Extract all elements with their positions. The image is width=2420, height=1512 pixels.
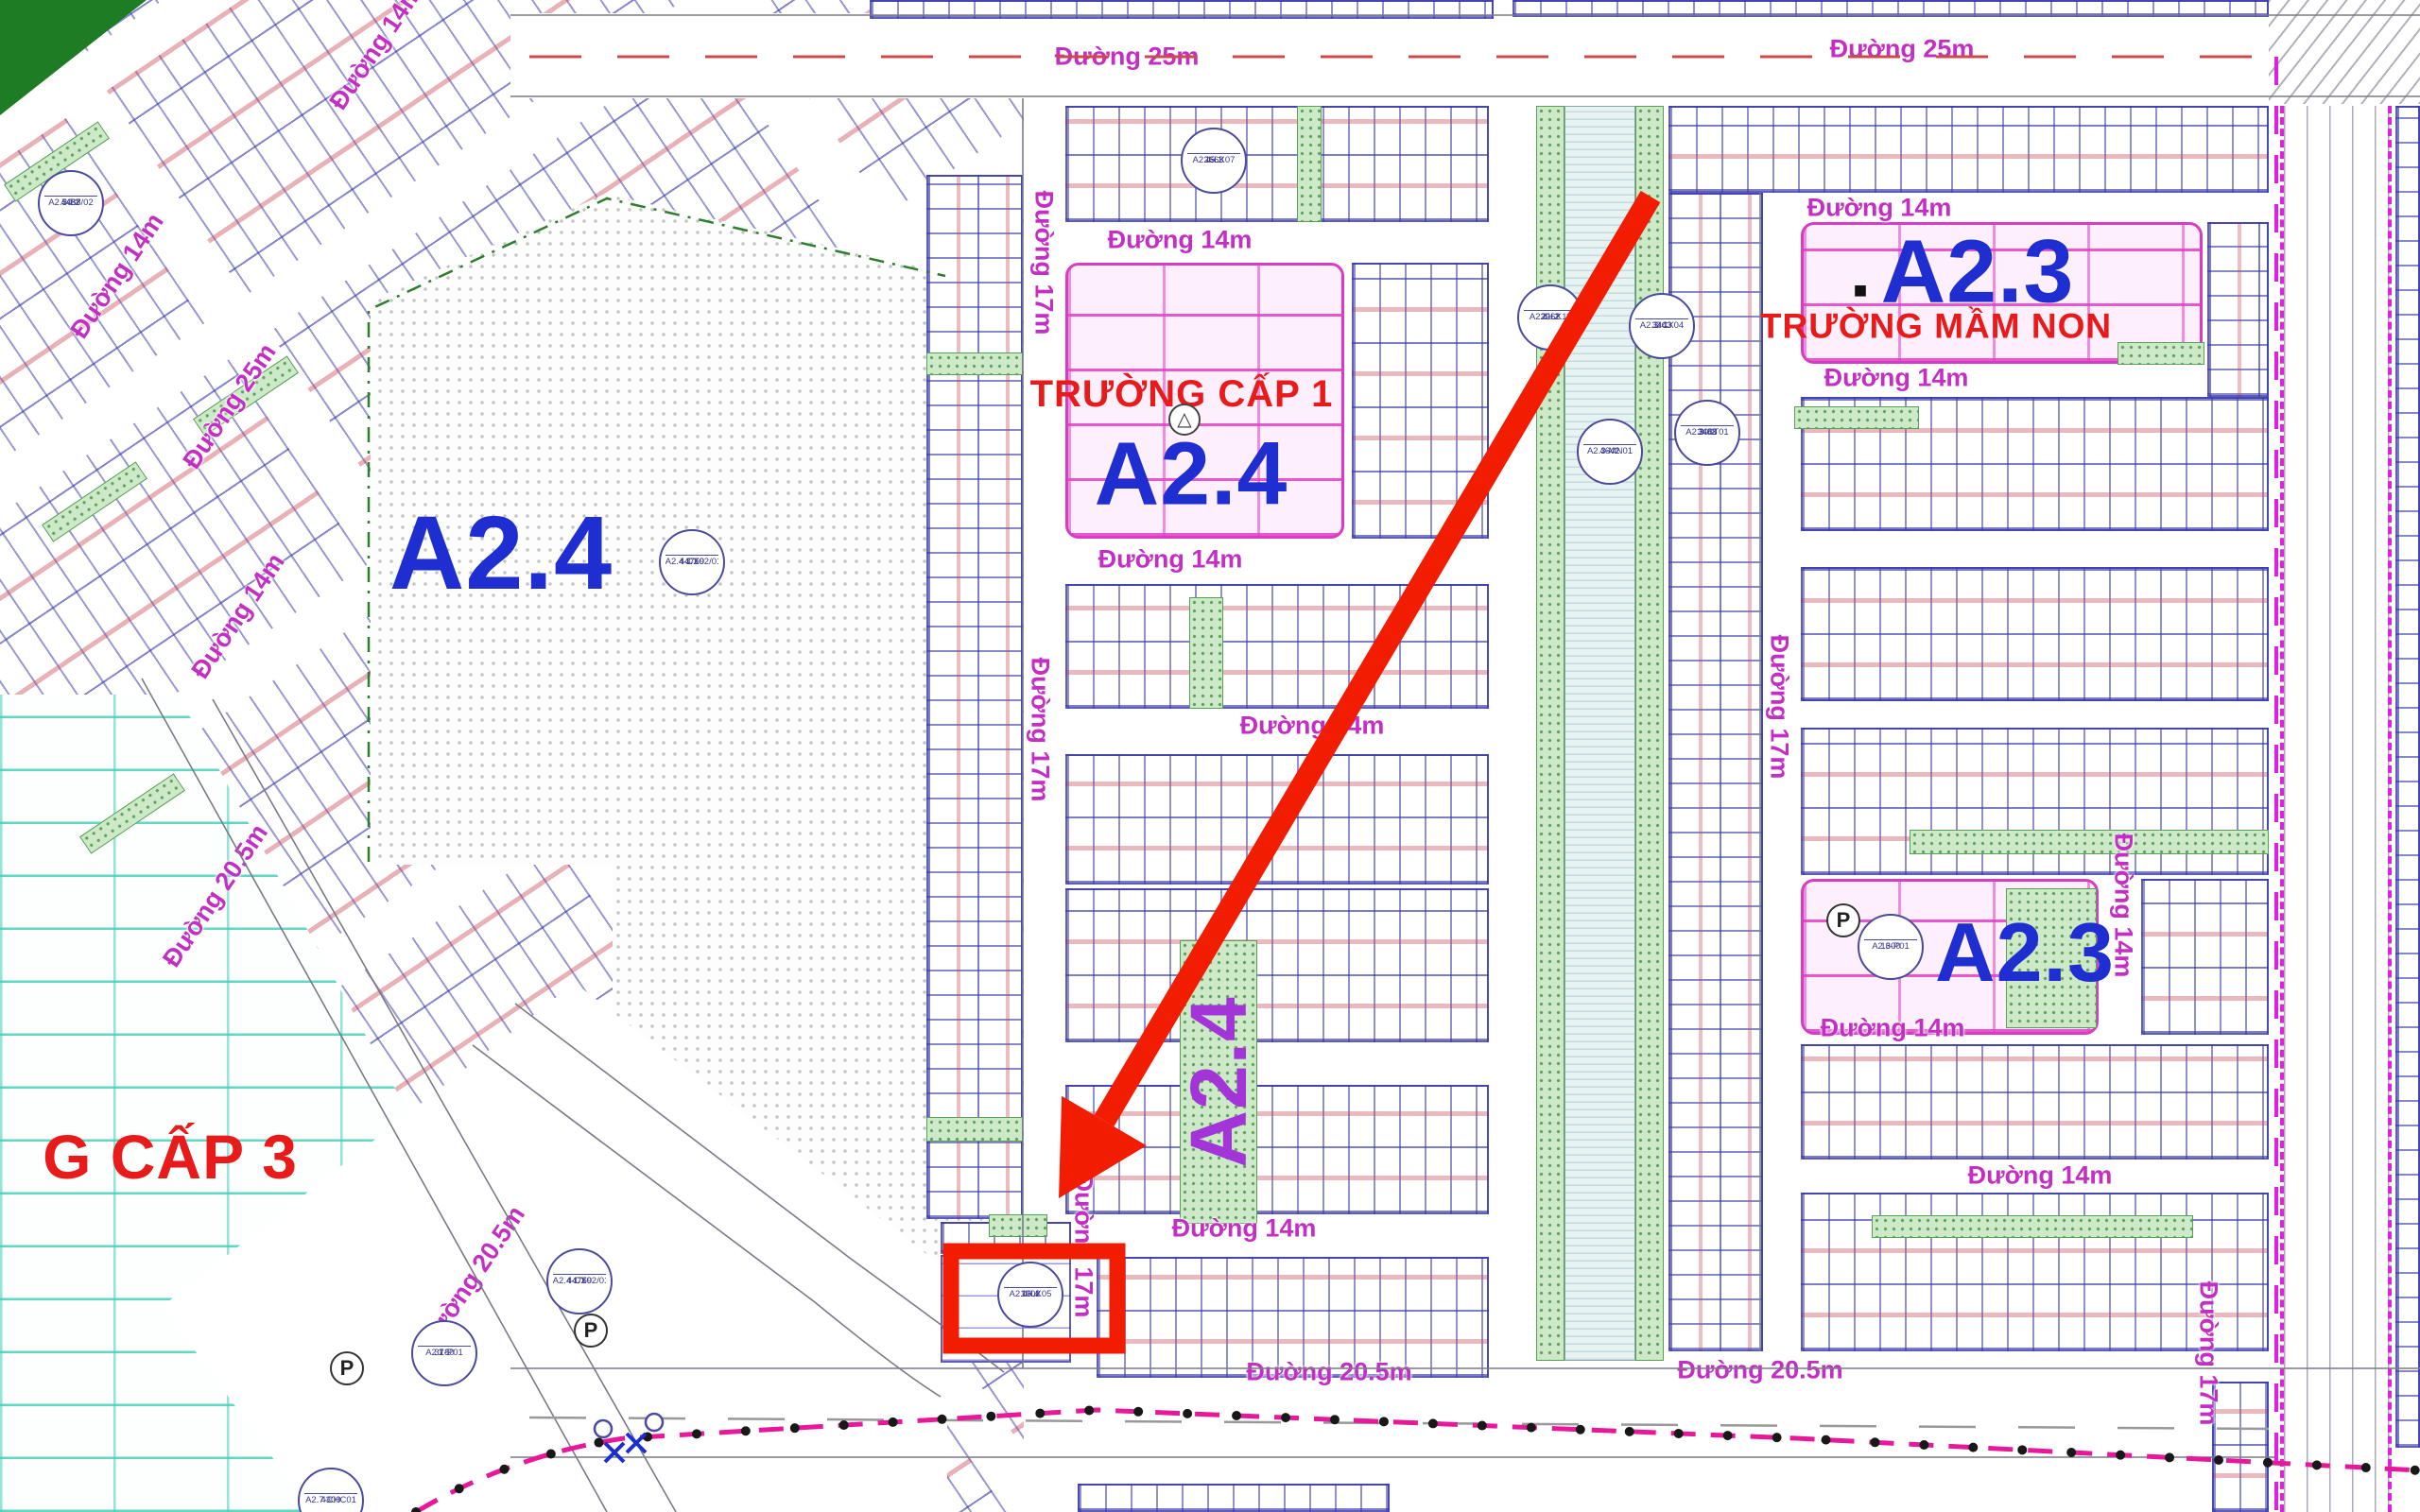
school-truong-cap-3: G CẤP 3 (43, 1125, 298, 1188)
road-label: Đường 14m (1968, 1161, 2113, 1191)
survey-stamp: 1002A2.4-LK0516 4 (997, 1262, 1063, 1328)
road-label: Đường 14m (185, 548, 290, 684)
survey-stamp: 44769A2.4-CX02/011 1 (546, 1248, 613, 1314)
survey-stamp: 3180A2.7-P011 1 (411, 1320, 477, 1386)
school-triangle-marker: △ (1168, 404, 1201, 436)
road-label: Đường 20.5m (157, 819, 274, 973)
labels-layer: A2.4A2.4TRƯỜNG CẤP 1A2.3TRƯỜNG MẦM NONA2… (0, 0, 2420, 1512)
zone-a24-strip: A2.4 (1179, 996, 1258, 1167)
survey-stamp: 2962A2.4-LK1121 2 (1517, 284, 1583, 351)
road-label: Đường 14m (1240, 712, 1385, 741)
road-label: Đường 20.5m (1246, 1358, 1411, 1387)
survey-stamp: 4300A2.7-CHC01 (298, 1468, 364, 1512)
road-label: Đường 14m (1807, 194, 1952, 223)
planning-map-canvas[interactable]: A2.4A2.4TRƯỜNG CẤP 1A2.3TRƯỜNG MẦM NONA2… (0, 0, 2420, 1512)
zone-a23-north: A2.3 (1881, 228, 2075, 318)
road-label: Đường 17m (1069, 1174, 1098, 1318)
survey-stamp: 2663A2.4-LK0715 1 (1181, 128, 1247, 194)
road-label: Đường 25m (1830, 35, 1975, 64)
road-label: Đường 17m (1765, 635, 1794, 780)
road-label: Đường 14m (1098, 545, 1243, 575)
road-label: Đường 14m (1108, 226, 1253, 255)
survey-stamp: 3443A2.3-CX042 1 (1629, 293, 1695, 359)
road-label: Đường 20.5m (1677, 1356, 1842, 1385)
zone-a23-south: A2.3 (1935, 911, 2115, 994)
school-truong-mam-non: TRƯỜNG MẦM NON (1760, 309, 2112, 344)
road-label: Đường 14m (1821, 1014, 1965, 1043)
road-label: Đường 25m (1055, 43, 1200, 72)
survey-stamp: 4642A2.3-MN01 (1577, 419, 1643, 485)
road-label: Đường 17m (1026, 658, 1055, 802)
parking-marker: P (330, 1351, 364, 1385)
zone-a24-school: A2.4 (1095, 430, 1288, 520)
zone-a24-west: A2.4 (389, 502, 613, 606)
survey-stamp: 1600A2.3-P01 (1858, 914, 1924, 980)
kindergarten-square-marker: ■ (1854, 280, 1868, 302)
survey-stamp: 4488A2.5-B7/0230 2 (38, 170, 104, 236)
parking-marker: P (1826, 903, 1860, 937)
road-label: Đường 14m (323, 0, 428, 115)
parking-marker: P (574, 1314, 608, 1348)
survey-stamp: 44769A2.4-CX02/013 1 (659, 529, 725, 595)
road-label: Đường 14m (2109, 833, 2138, 978)
survey-stamp: 3448A2.3-BT0130 3 (1674, 400, 1740, 466)
road-label: Đường 14m (1824, 364, 1969, 393)
road-label: Đường 17m (1029, 191, 1059, 335)
road-label: Đường 17m (2194, 1281, 2223, 1426)
road-label: Đường 25m (177, 338, 282, 474)
road-label: Đường 14m (1172, 1214, 1317, 1244)
